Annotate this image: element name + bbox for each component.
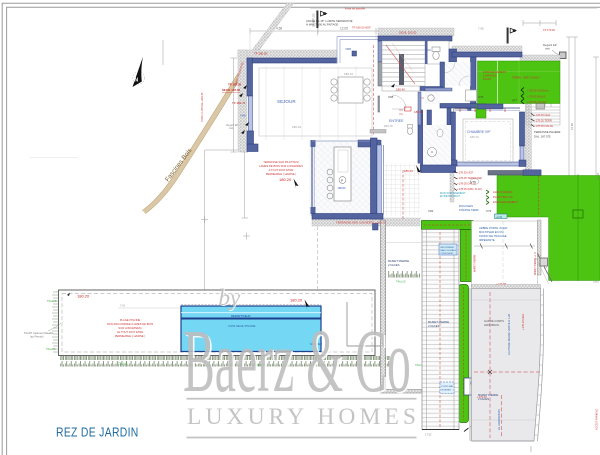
- svg-text:LE TOUT DOIT ETRE: LE TOUT DOIT ETRE: [117, 330, 143, 334]
- svg-text:SUR LONGRINES): SUR LONGRINES): [118, 326, 141, 330]
- svg-text:VMB: VMB: [345, 47, 351, 51]
- svg-text:IMPERANTE: IMPERANTE: [479, 238, 495, 242]
- svg-text:TP 179.90: TP 179.90: [543, 28, 555, 32]
- svg-text:+178.05 DALLE: +178.05 DALLE: [527, 95, 546, 99]
- svg-text:TALUS: TALUS: [46, 347, 55, 351]
- svg-text:A TOUT DOIT ETRE: A TOUT DOIT ETRE: [269, 168, 294, 172]
- svg-text:7.59: 7.59: [478, 27, 484, 31]
- svg-text:180.10: 180.10: [384, 124, 393, 128]
- svg-text:MOLTIPLER EN CM: MOLTIPLER EN CM: [479, 230, 504, 234]
- svg-text:180.20: 180.20: [77, 294, 90, 299]
- svg-text:V79: V79: [478, 95, 484, 99]
- svg-text:7.41: 7.41: [120, 304, 126, 308]
- svg-text:PISCINE TERR.: PISCINE TERR.: [459, 208, 480, 212]
- svg-text:VMB: VMB: [240, 114, 246, 118]
- svg-text:H MAX 7m00 AU FAITAGE: H MAX 7m00 AU FAITAGE: [306, 23, 338, 27]
- svg-text:WC: WC: [426, 48, 432, 52]
- svg-text:TERRASSE PALIERE: TERRASSE PALIERE: [534, 130, 561, 134]
- svg-text:visit: visit: [545, 46, 550, 50]
- svg-text:12.05: 12.05: [340, 27, 348, 31]
- svg-text:2 FACES: 2 FACES: [388, 263, 400, 267]
- svg-text:REZ DE JARDIN: REZ DE JARDIN: [56, 427, 139, 440]
- svg-text:LAVANDES: LAVANDES: [483, 74, 497, 78]
- svg-text:ENSOLEILLEMENT: ENSOLEILLEMENT: [483, 70, 507, 74]
- svg-text:by: by: [219, 285, 242, 310]
- svg-text:TRONC DE TRACHEE: TRONC DE TRACHEE: [479, 234, 507, 238]
- svg-text:ROBINET: ROBINET: [442, 390, 452, 392]
- svg-text:CHAMBRE VIP: CHAMBRE VIP: [467, 130, 491, 134]
- svg-text:GRIS BRUN: GRIS BRUN: [484, 323, 499, 327]
- svg-text:21.86: 21.86: [570, 123, 574, 130]
- svg-text:180.10: 180.10: [404, 169, 413, 173]
- svg-text:TP 180.70: TP 180.70: [232, 101, 246, 105]
- svg-text:V68: V68: [388, 95, 394, 99]
- svg-text:V92: V92: [428, 209, 434, 213]
- svg-text:2 FACES: 2 FACES: [428, 324, 440, 328]
- svg-text:+178.05 NGF(min): +178.05 NGF(min): [527, 89, 549, 93]
- svg-text:RECUPERAT.: RECUPERAT.: [441, 246, 455, 249]
- svg-text:PERMEABLE ( HAIRSE ): PERMEABLE ( HAIRSE ): [266, 172, 297, 176]
- svg-text:14.55: 14.55: [596, 173, 600, 180]
- svg-text:SEUIL 187.30: SEUIL 187.30: [222, 88, 240, 92]
- svg-text:TALUS: TALUS: [396, 280, 405, 284]
- svg-text:PERMEABLE ( HAIRSE ): PERMEABLE ( HAIRSE ): [115, 334, 146, 338]
- svg-text:N: N: [134, 78, 138, 84]
- svg-text:V73: V73: [486, 209, 492, 213]
- svg-text:17.02: 17.02: [425, 433, 432, 437]
- svg-text:PLANT: PLANT: [483, 77, 492, 81]
- svg-text:LE JARDIN BOIS: LE JARDIN BOIS: [497, 409, 501, 430]
- svg-text:ENSOLEILLEMENT: ENSOLEILLEMENT: [493, 200, 518, 204]
- svg-text:+6.60: +6.60: [496, 216, 503, 219]
- svg-text:ACCES PARKING: ACCES PARKING: [595, 409, 599, 430]
- svg-text:V75: V75: [471, 180, 477, 184]
- svg-text:CLOTURE RIGIDE VERTE H 1.20: CLOTURE RIGIDE VERTE H 1.20: [507, 313, 511, 355]
- svg-text:V77: V77: [512, 99, 517, 103]
- svg-text:HAIE VIVACES: HAIE VIVACES: [493, 190, 512, 194]
- svg-text:POINT EAU: POINT EAU: [442, 385, 454, 388]
- svg-text:ENTREE: ENTREE: [389, 119, 404, 123]
- svg-text:+176.10 NGF: +176.10 NGF: [521, 313, 525, 330]
- svg-text:PLAGE PISCINE: PLAGE PISCINE: [120, 318, 141, 322]
- svg-text:LAMES DE BOIS SUR LONGRINES: LAMES DE BOIS SUR LONGRINES: [259, 164, 303, 168]
- svg-text:PLANT BAC 60: PLANT BAC 60: [493, 195, 513, 199]
- svg-text:TP 180.00 NGF: TP 180.00 NGF: [352, 26, 371, 30]
- svg-text:CUVE 5000L: CUVE 5000L: [441, 253, 455, 255]
- svg-text:TERRE : VERT VIOLET: TERRE : VERT VIOLET: [512, 76, 540, 80]
- svg-text:COTE CLOTURE +181.35: COTE CLOTURE +181.35: [201, 92, 204, 122]
- svg-text:+178.35 NGF: +178.35 NGF: [457, 171, 474, 175]
- svg-text:ARBRE PORTE 'ACER': ARBRE PORTE 'ACER': [479, 226, 508, 230]
- svg-text:180.40: 180.40: [396, 88, 405, 92]
- svg-text:MURET PIERRE: MURET PIERRE: [475, 254, 477, 272]
- svg-text:MURET PIERRE +177: MURET PIERRE +177: [535, 251, 537, 275]
- svg-text:GARDE CORPS: GARDE CORPS: [484, 319, 504, 323]
- svg-text:TP 180.00: TP 180.00: [254, 52, 268, 56]
- svg-text:180.10: 180.10: [292, 125, 302, 129]
- svg-text:Baerz & Co: Baerz & Co: [183, 311, 411, 411]
- svg-text:EN BETON BRUT: EN BETON BRUT: [440, 195, 461, 198]
- svg-text:EAU PLUVIALE: EAU PLUVIALE: [441, 249, 457, 252]
- svg-text:180.20: 180.20: [279, 177, 292, 182]
- svg-text:PLANT (retenue) faisable: PLANT (retenue) faisable: [24, 331, 54, 335]
- svg-text:180.10: 180.10: [470, 135, 479, 139]
- svg-text:180.10: 180.10: [414, 110, 423, 114]
- svg-text:TALUS: TALUS: [118, 362, 127, 366]
- svg-text:TALUS: TALUS: [47, 299, 56, 303]
- svg-text:NON RACCORDEE (LAMES DE BOIS: NON RACCORDEE (LAMES DE BOIS: [107, 322, 153, 326]
- svg-text:+178.05 NGF: +178.05 NGF: [534, 113, 551, 117]
- svg-text:180.10: 180.10: [344, 72, 354, 76]
- svg-text:limite de parcelle: limite de parcelle: [345, 7, 366, 11]
- svg-text:TERRASSE NON COUVERTE +180.10: TERRASSE NON COUVERTE +180.10: [336, 221, 386, 225]
- svg-text:DAL. 187.075: DAL. 187.075: [534, 135, 551, 139]
- svg-text:+178.05 (MIN. ht 40): +178.05 (MIN. ht 40): [457, 187, 482, 191]
- svg-text:ANGLE DE 45° / LIMITE SEPARATI: ANGLE DE 45° / LIMITE SEPARATIVE: [306, 19, 353, 23]
- svg-text:180.20: 180.20: [290, 298, 303, 303]
- svg-text:SEJOUR: SEJOUR: [277, 99, 296, 104]
- svg-text:180.80: 180.80: [338, 186, 346, 190]
- svg-text:TERRASSE SUR PILOTIS(S): TERRASSE SUR PILOTIS(S): [263, 160, 299, 164]
- svg-text:SEUIL 180.20: SEUIL 180.20: [399, 31, 417, 35]
- svg-text:+178.05 TERR: +178.05 TERR: [534, 119, 552, 123]
- svg-text:4.58: 4.58: [276, 27, 282, 31]
- svg-text:+178.05 DALLE: +178.05 DALLE: [534, 124, 553, 128]
- svg-text:visit: visit: [229, 127, 234, 130]
- svg-text:(au Permis): (au Permis): [30, 335, 44, 339]
- svg-text:+175.40: +175.40: [477, 395, 487, 399]
